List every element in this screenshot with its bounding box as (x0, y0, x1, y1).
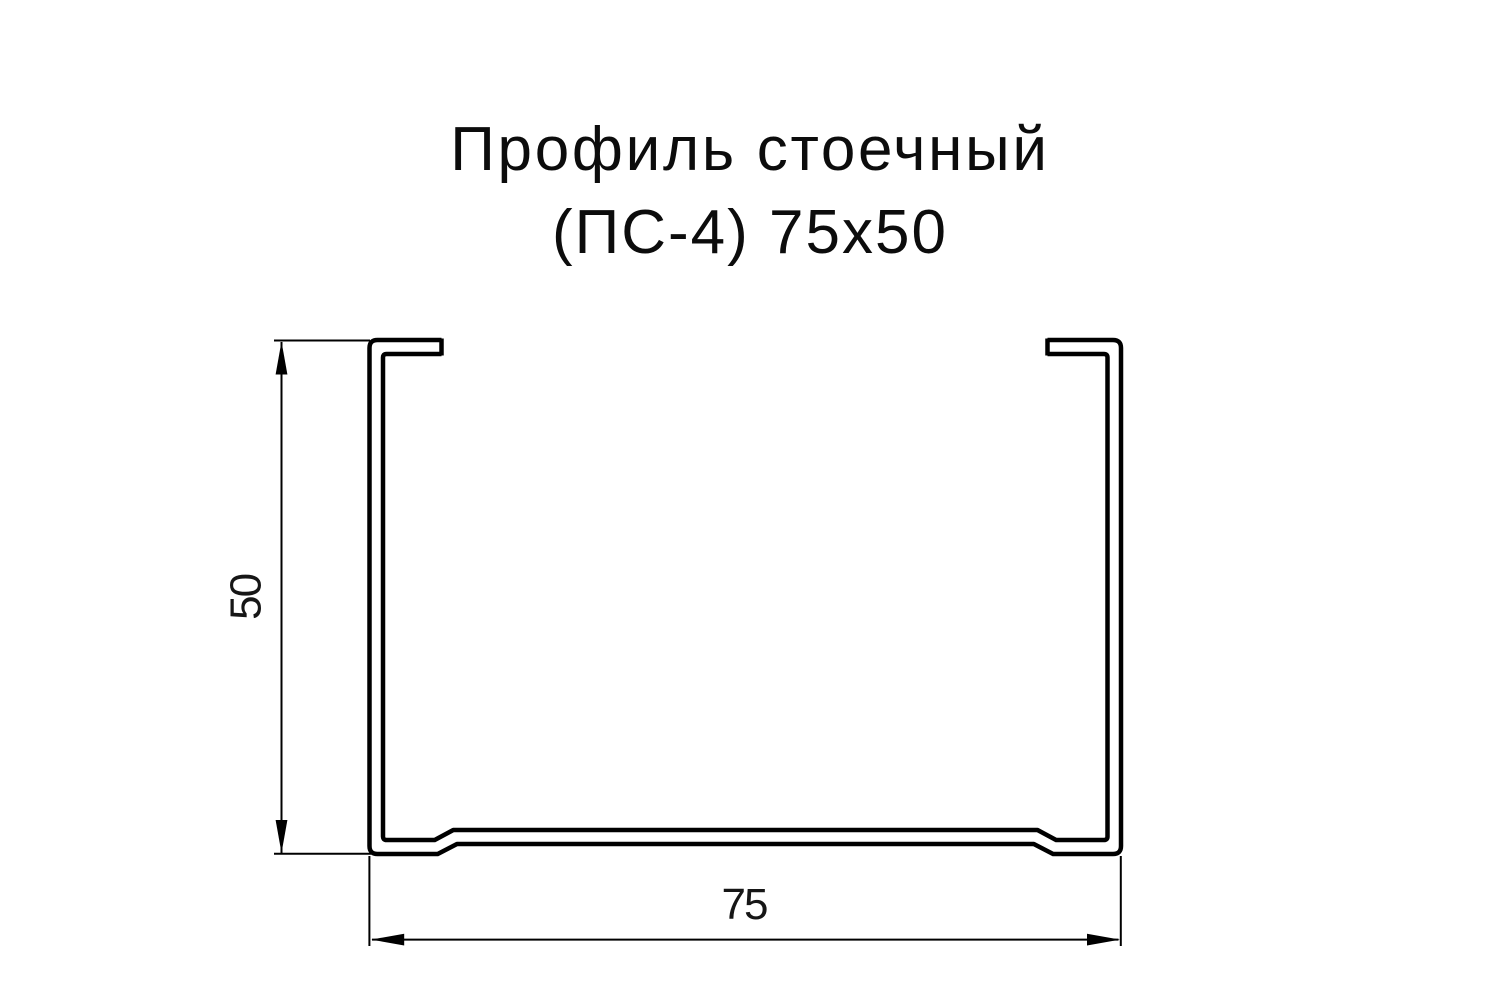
svg-text:(ПС-4) 75х50: (ПС-4) 75х50 (552, 198, 948, 267)
svg-text:50: 50 (222, 574, 271, 619)
svg-text:75: 75 (722, 880, 767, 929)
svg-text:Профиль стоечный: Профиль стоечный (450, 115, 1049, 184)
